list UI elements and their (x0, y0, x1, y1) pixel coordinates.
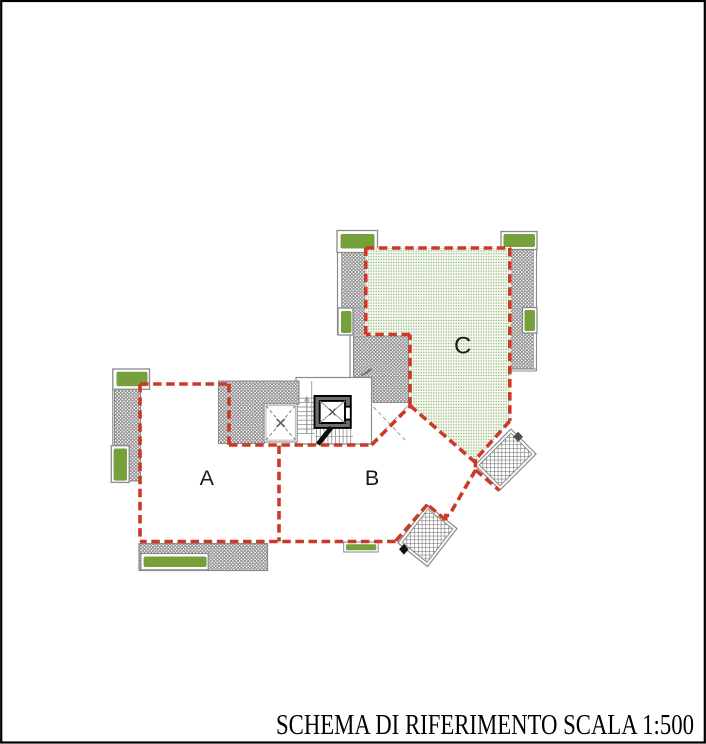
svg-text:SCHEMA DI RIFERIMENTO SCALA 1:: SCHEMA DI RIFERIMENTO SCALA 1:500 (276, 710, 694, 741)
svg-text:C: C (454, 333, 471, 360)
svg-text:B: B (365, 466, 379, 490)
svg-text:A: A (200, 466, 215, 490)
